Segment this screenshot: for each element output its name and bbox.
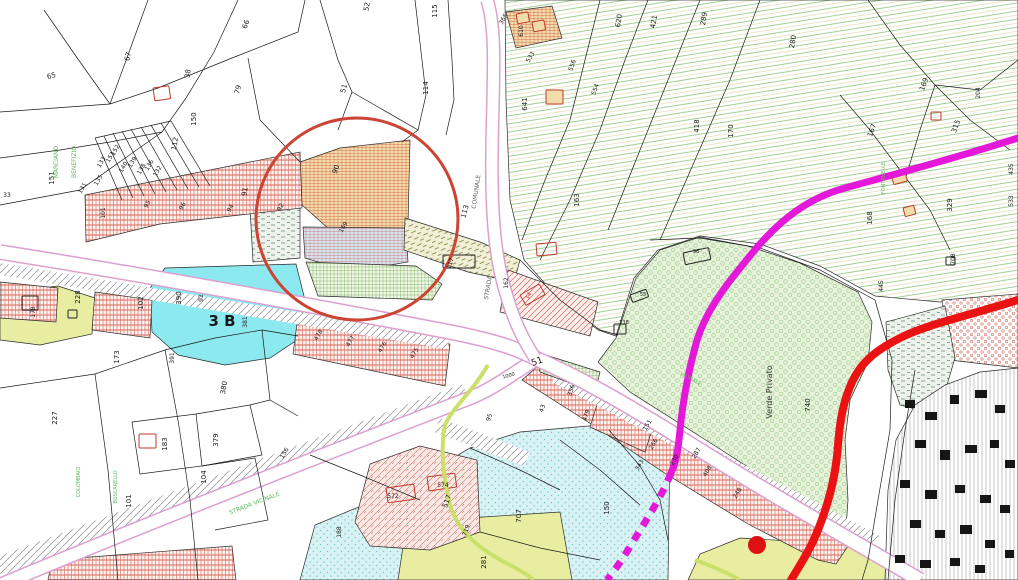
parcel-label: 104 [200, 470, 208, 484]
urban-building [980, 495, 991, 503]
parcel-label: BOSCARELLO [113, 470, 119, 503]
parcel-label: 163 [573, 193, 581, 206]
parcel-label: 574 [437, 482, 449, 489]
parcel-label: 168 [866, 211, 874, 224]
urban-building [995, 405, 1005, 413]
parcel-label: 707 [515, 509, 523, 522]
parcel-label: 281 [480, 555, 488, 568]
urban-building [905, 400, 915, 408]
parcel-label: MARCIANO [53, 146, 60, 179]
parcel-label: 641 [521, 97, 529, 110]
parcel-label: 381 [242, 316, 249, 328]
parcel-label: 96 [693, 249, 699, 255]
urban-building [950, 558, 960, 566]
parcel-label: 101 [100, 207, 107, 219]
parcel-label: 572 [387, 493, 399, 500]
urban-building [1000, 505, 1010, 513]
parcel-label: 92 [198, 294, 205, 302]
urban-building [960, 525, 972, 534]
parcel-label: 101 [125, 494, 133, 507]
urban-building [985, 540, 995, 548]
parcel-label: 188 [336, 526, 343, 538]
parcel-label: 150 [603, 501, 611, 514]
parcel-label: 329 [946, 198, 954, 211]
urban-building [900, 480, 910, 488]
house [516, 12, 530, 24]
parcel-label: 102 [137, 296, 145, 309]
parcel-label: FONTANELLE [881, 162, 887, 194]
parcel-label: 227 [51, 411, 59, 424]
parcel-label: 228 [74, 290, 82, 303]
urban-building [915, 440, 926, 448]
red-dot-marker [748, 536, 766, 554]
urban-building [920, 560, 931, 568]
house [546, 90, 563, 104]
parcel-label: 740 [804, 398, 812, 411]
parcel-label: 115 [431, 4, 439, 17]
parcel-label: 390 [175, 291, 183, 304]
urban-building [935, 530, 945, 538]
parcel-label: 170 [727, 124, 735, 137]
parcel-label: 204 [975, 87, 982, 99]
parcel-label: 162 [503, 277, 510, 289]
parcel-label: 391 [169, 352, 176, 364]
parcel-label: 91 [240, 187, 249, 197]
urban-building [925, 412, 937, 420]
parcel-label: 418 [693, 119, 701, 132]
parcel-label: 708 [950, 253, 957, 265]
urban-building [950, 395, 959, 404]
parcel-label: 173 [113, 350, 121, 363]
parcel-label: 379 [212, 433, 220, 446]
parcel-label: 33 [3, 192, 11, 199]
urban-building [895, 555, 905, 563]
parcel-label: 533 [1008, 195, 1015, 207]
parcel-label: Verde Privato [765, 365, 774, 418]
parcel-label: 610 [518, 25, 525, 37]
urban-building [925, 490, 937, 499]
map-canvas[interactable]: 6567663879150151525111511433153133152140… [0, 0, 1018, 580]
parcel-label: 3 B [208, 312, 235, 330]
parcel-label: 55 [640, 292, 646, 298]
house [532, 20, 546, 32]
urban-building [990, 440, 999, 448]
parcel-label: 52 [362, 2, 371, 12]
urban-building [1005, 550, 1014, 558]
parcel-label: 183 [161, 437, 169, 450]
parcel-label: 38 [183, 69, 192, 79]
parcel-label: 445 [878, 280, 885, 292]
urban-building [965, 445, 977, 453]
parcel-label: 178 [30, 306, 37, 318]
cadastral-map-view[interactable]: 6567663879150151525111511433153133152140… [0, 0, 1018, 580]
urban-building [910, 520, 921, 528]
parcel-label: 738 [619, 320, 629, 326]
urban-building [940, 450, 950, 460]
parcel-label: 150 [190, 112, 198, 125]
urban-building [975, 390, 987, 398]
urban-building [975, 565, 985, 573]
parcel-label: COLOMBAIO [76, 467, 82, 498]
parcel-label: BENEFIZIO [71, 146, 78, 178]
urban-building [1005, 460, 1015, 468]
zone-red-brick-strip-south-a [0, 282, 58, 322]
urban-building [955, 485, 965, 493]
parcel-label: 114 [422, 81, 430, 95]
parcel-label: 435 [1008, 163, 1015, 175]
